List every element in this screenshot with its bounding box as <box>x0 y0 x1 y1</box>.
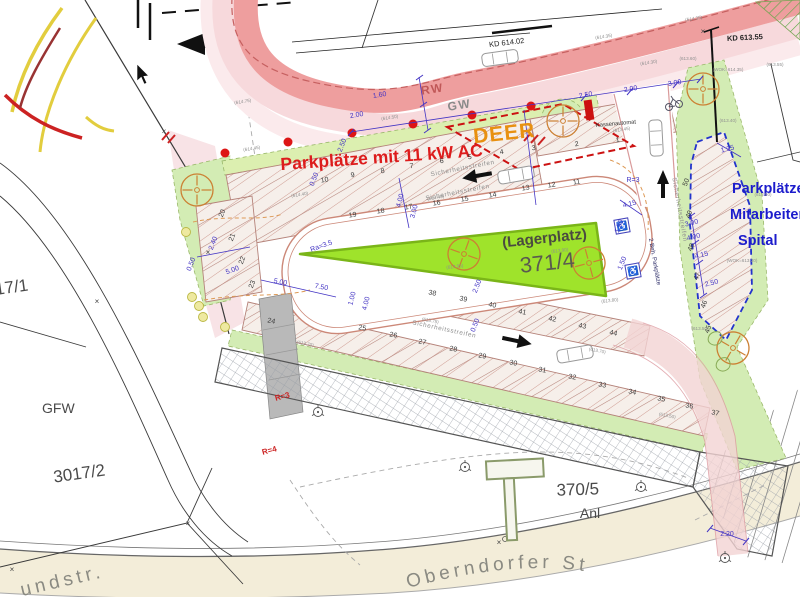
label-gfw: GFW <box>42 400 75 416</box>
elev-label: (613.50) <box>754 192 772 197</box>
mark-label: × <box>206 248 211 257</box>
stall-label: 25 <box>358 324 367 332</box>
elev-label: (613.60) <box>679 56 697 61</box>
stall-label: 14 <box>488 191 497 199</box>
site-plan-drawing: ♿ ♿ Pa <box>0 0 800 597</box>
label-spital-3: Spital <box>738 233 777 249</box>
elev-label: (613.50) <box>691 326 709 331</box>
stall-label: 12 <box>547 181 556 189</box>
stall-label: 26 <box>389 331 398 339</box>
elev-label: (WOK=614.35) <box>713 67 744 72</box>
label-kd-613: KD 613.55 <box>727 32 763 43</box>
dim-label: 2.20 <box>720 531 734 538</box>
elev-label: (613.55) <box>766 62 784 67</box>
stall-label: 27 <box>418 338 427 346</box>
stall-label: 11 <box>573 178 581 186</box>
stall-label: 10 <box>320 176 329 184</box>
stall-label: 33 <box>598 381 607 389</box>
mark-label: × <box>10 565 15 574</box>
mark-label: × <box>701 27 706 36</box>
mark-label: × <box>186 519 191 528</box>
stall-label: 15 <box>460 195 469 203</box>
stall-label: 29 <box>478 352 487 360</box>
label-anl: Anl <box>580 505 600 521</box>
stall-label: 19 <box>348 211 357 219</box>
mark-label: × <box>162 127 167 136</box>
svg-text:♿: ♿ <box>627 265 640 278</box>
stall-label: 35 <box>657 395 666 403</box>
stall-label: 24 <box>267 317 276 325</box>
mark-label: × <box>95 297 100 306</box>
elev-label: (613.40) <box>719 118 737 123</box>
stall-label: 37 <box>711 409 720 417</box>
stall-label: 36 <box>685 402 694 410</box>
label-spital-2: Mitarbeiter <box>730 207 800 223</box>
mark-label: × <box>497 538 502 547</box>
stall-label: 30 <box>509 359 518 367</box>
elev-label: (WOK=613.20) <box>727 258 758 263</box>
stall-label: 13 <box>521 184 530 192</box>
radiu-label: R=3 <box>626 177 639 184</box>
stall-label: 34 <box>628 388 637 396</box>
label-parcel-370-5: 370/5 <box>556 479 599 499</box>
stall-label: 31 <box>538 366 547 374</box>
site-plan-page: ♿ ♿ Pa <box>0 0 800 597</box>
stall-label: 32 <box>568 373 577 381</box>
stall-label: 18 <box>376 207 385 215</box>
stall-label: 28 <box>449 345 458 353</box>
